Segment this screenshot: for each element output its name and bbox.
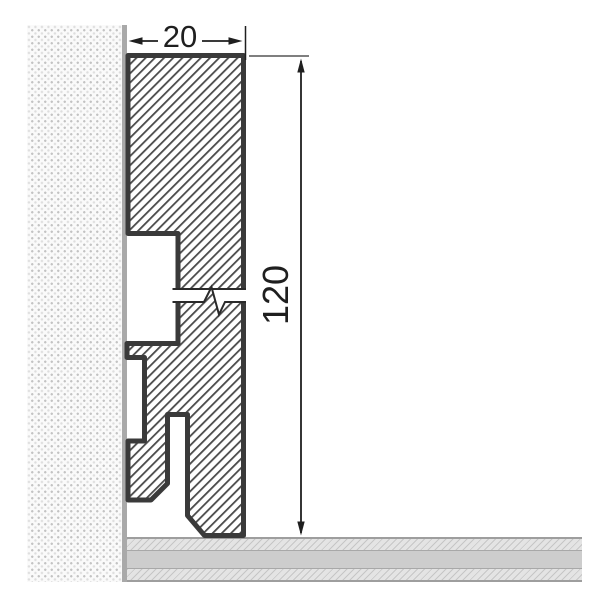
width-dimension-arrow-right bbox=[229, 37, 243, 45]
height-dimension-arrow-top bbox=[297, 59, 304, 73]
width-dimension-label: 20 bbox=[152, 21, 208, 53]
technical-drawing-canvas: 20 120 bbox=[0, 0, 604, 604]
profile-drawing bbox=[0, 0, 604, 604]
height-dimension-arrow-bottom bbox=[297, 522, 304, 536]
profile-upper-section bbox=[128, 56, 244, 290]
height-dimension-label: 120 bbox=[257, 235, 295, 355]
width-dimension-arrow-left bbox=[129, 37, 143, 45]
